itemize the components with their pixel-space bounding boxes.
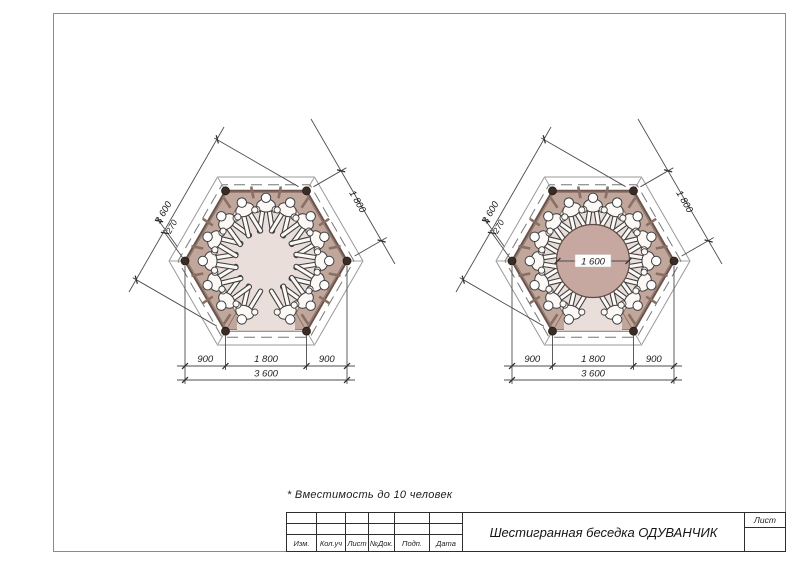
dim-bottom-right: 900: [319, 354, 336, 365]
dim-bottom-total: 3 600: [581, 369, 605, 380]
col-list: Лист: [346, 535, 369, 551]
dim-bottom-center: 1 800: [254, 354, 278, 365]
plan-with-table: 1 600: [423, 85, 763, 405]
sheet-label: Лист: [745, 513, 785, 528]
revision-header-row: Изм. Кол.уч Лист №Док. Подп. Дата: [287, 535, 462, 551]
col-izm: Изм.: [287, 535, 317, 551]
drawing-title: Шестигранная беседка ОДУВАНЧИК: [463, 513, 744, 551]
dim-bottom-left: 900: [197, 354, 214, 365]
revision-grid: Изм. Кол.уч Лист №Док. Подп. Дата: [287, 513, 463, 551]
revision-row: [287, 513, 462, 524]
dim-bottom-right: 900: [646, 354, 663, 365]
col-koluch: Кол.уч: [317, 535, 346, 551]
drawing-sheet: 3 600 270 1 800 900 1 800 900 3 600: [0, 0, 800, 566]
col-ndok: №Док.: [369, 535, 395, 551]
dim-bottom-left: 900: [524, 354, 541, 365]
plan-with-table-svg: 1 600: [423, 85, 763, 405]
revision-row: [287, 524, 462, 535]
col-podp: Подп.: [395, 535, 430, 551]
sheet-number-cell: Лист: [744, 513, 785, 551]
dim-table-diameter: 1 600: [581, 257, 605, 268]
title-block: Изм. Кол.уч Лист №Док. Подп. Дата Шестиг…: [286, 512, 786, 552]
dim-bottom-total: 3 600: [254, 369, 278, 380]
plan-open-center-svg: 3 600 270 1 800 900 1 800 900 3 600: [96, 85, 436, 405]
capacity-note: * Вместимость до 10 человек: [287, 489, 452, 501]
dim-bottom-center: 1 800: [581, 354, 605, 365]
plan-open-center: 3 600 270 1 800 900 1 800 900 3 600: [96, 85, 436, 405]
col-data: Дата: [430, 535, 462, 551]
